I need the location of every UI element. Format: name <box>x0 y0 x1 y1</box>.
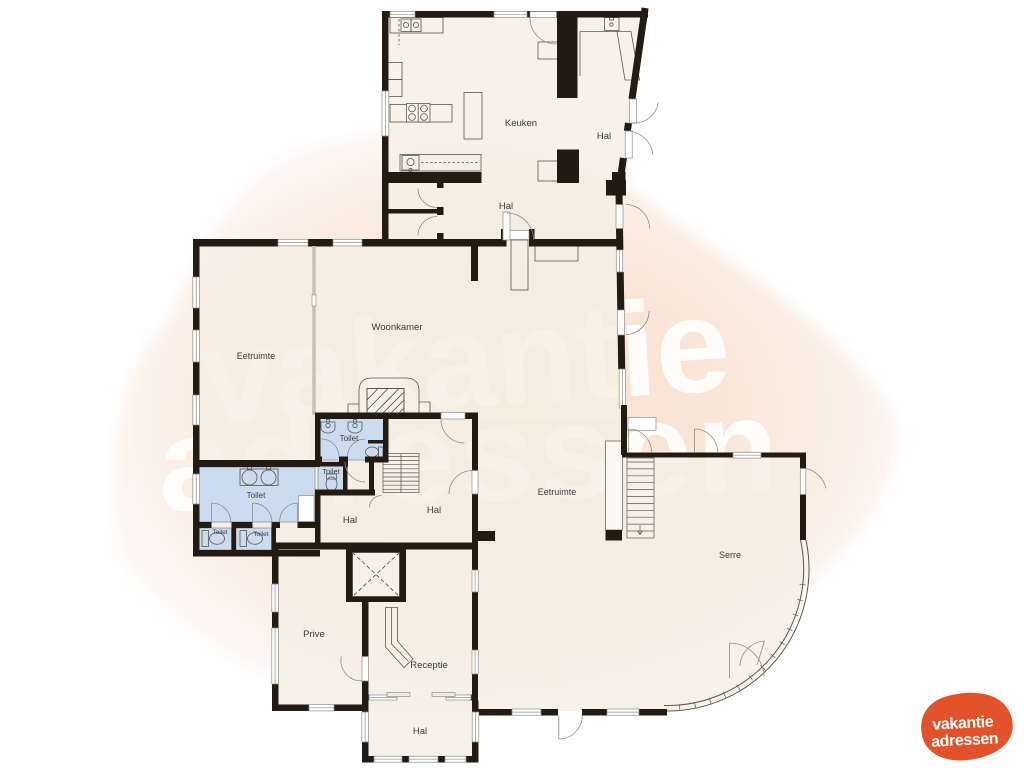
svg-text:Hal: Hal <box>343 515 357 526</box>
svg-text:Woonkamer: Woonkamer <box>371 322 422 333</box>
svg-text:Hal: Hal <box>427 505 441 516</box>
svg-text:Toilet: Toilet <box>247 491 266 500</box>
svg-text:Hal: Hal <box>597 131 611 142</box>
svg-text:Eetruimte: Eetruimte <box>538 487 577 497</box>
svg-text:Prive: Prive <box>303 629 325 640</box>
svg-text:Toilet: Toilet <box>322 467 340 476</box>
svg-text:Keuken: Keuken <box>505 118 537 129</box>
svg-text:Toilet: Toilet <box>253 531 268 538</box>
svg-text:Toilet: Toilet <box>212 529 227 536</box>
svg-text:Hal: Hal <box>413 726 427 737</box>
svg-text:Hal: Hal <box>499 201 513 212</box>
svg-text:Toilet: Toilet <box>340 434 359 443</box>
svg-text:Receptie: Receptie <box>410 660 448 671</box>
svg-text:Eetruimte: Eetruimte <box>237 351 276 361</box>
svg-text:adressen: adressen <box>931 730 999 750</box>
svg-text:Serre: Serre <box>719 550 741 560</box>
